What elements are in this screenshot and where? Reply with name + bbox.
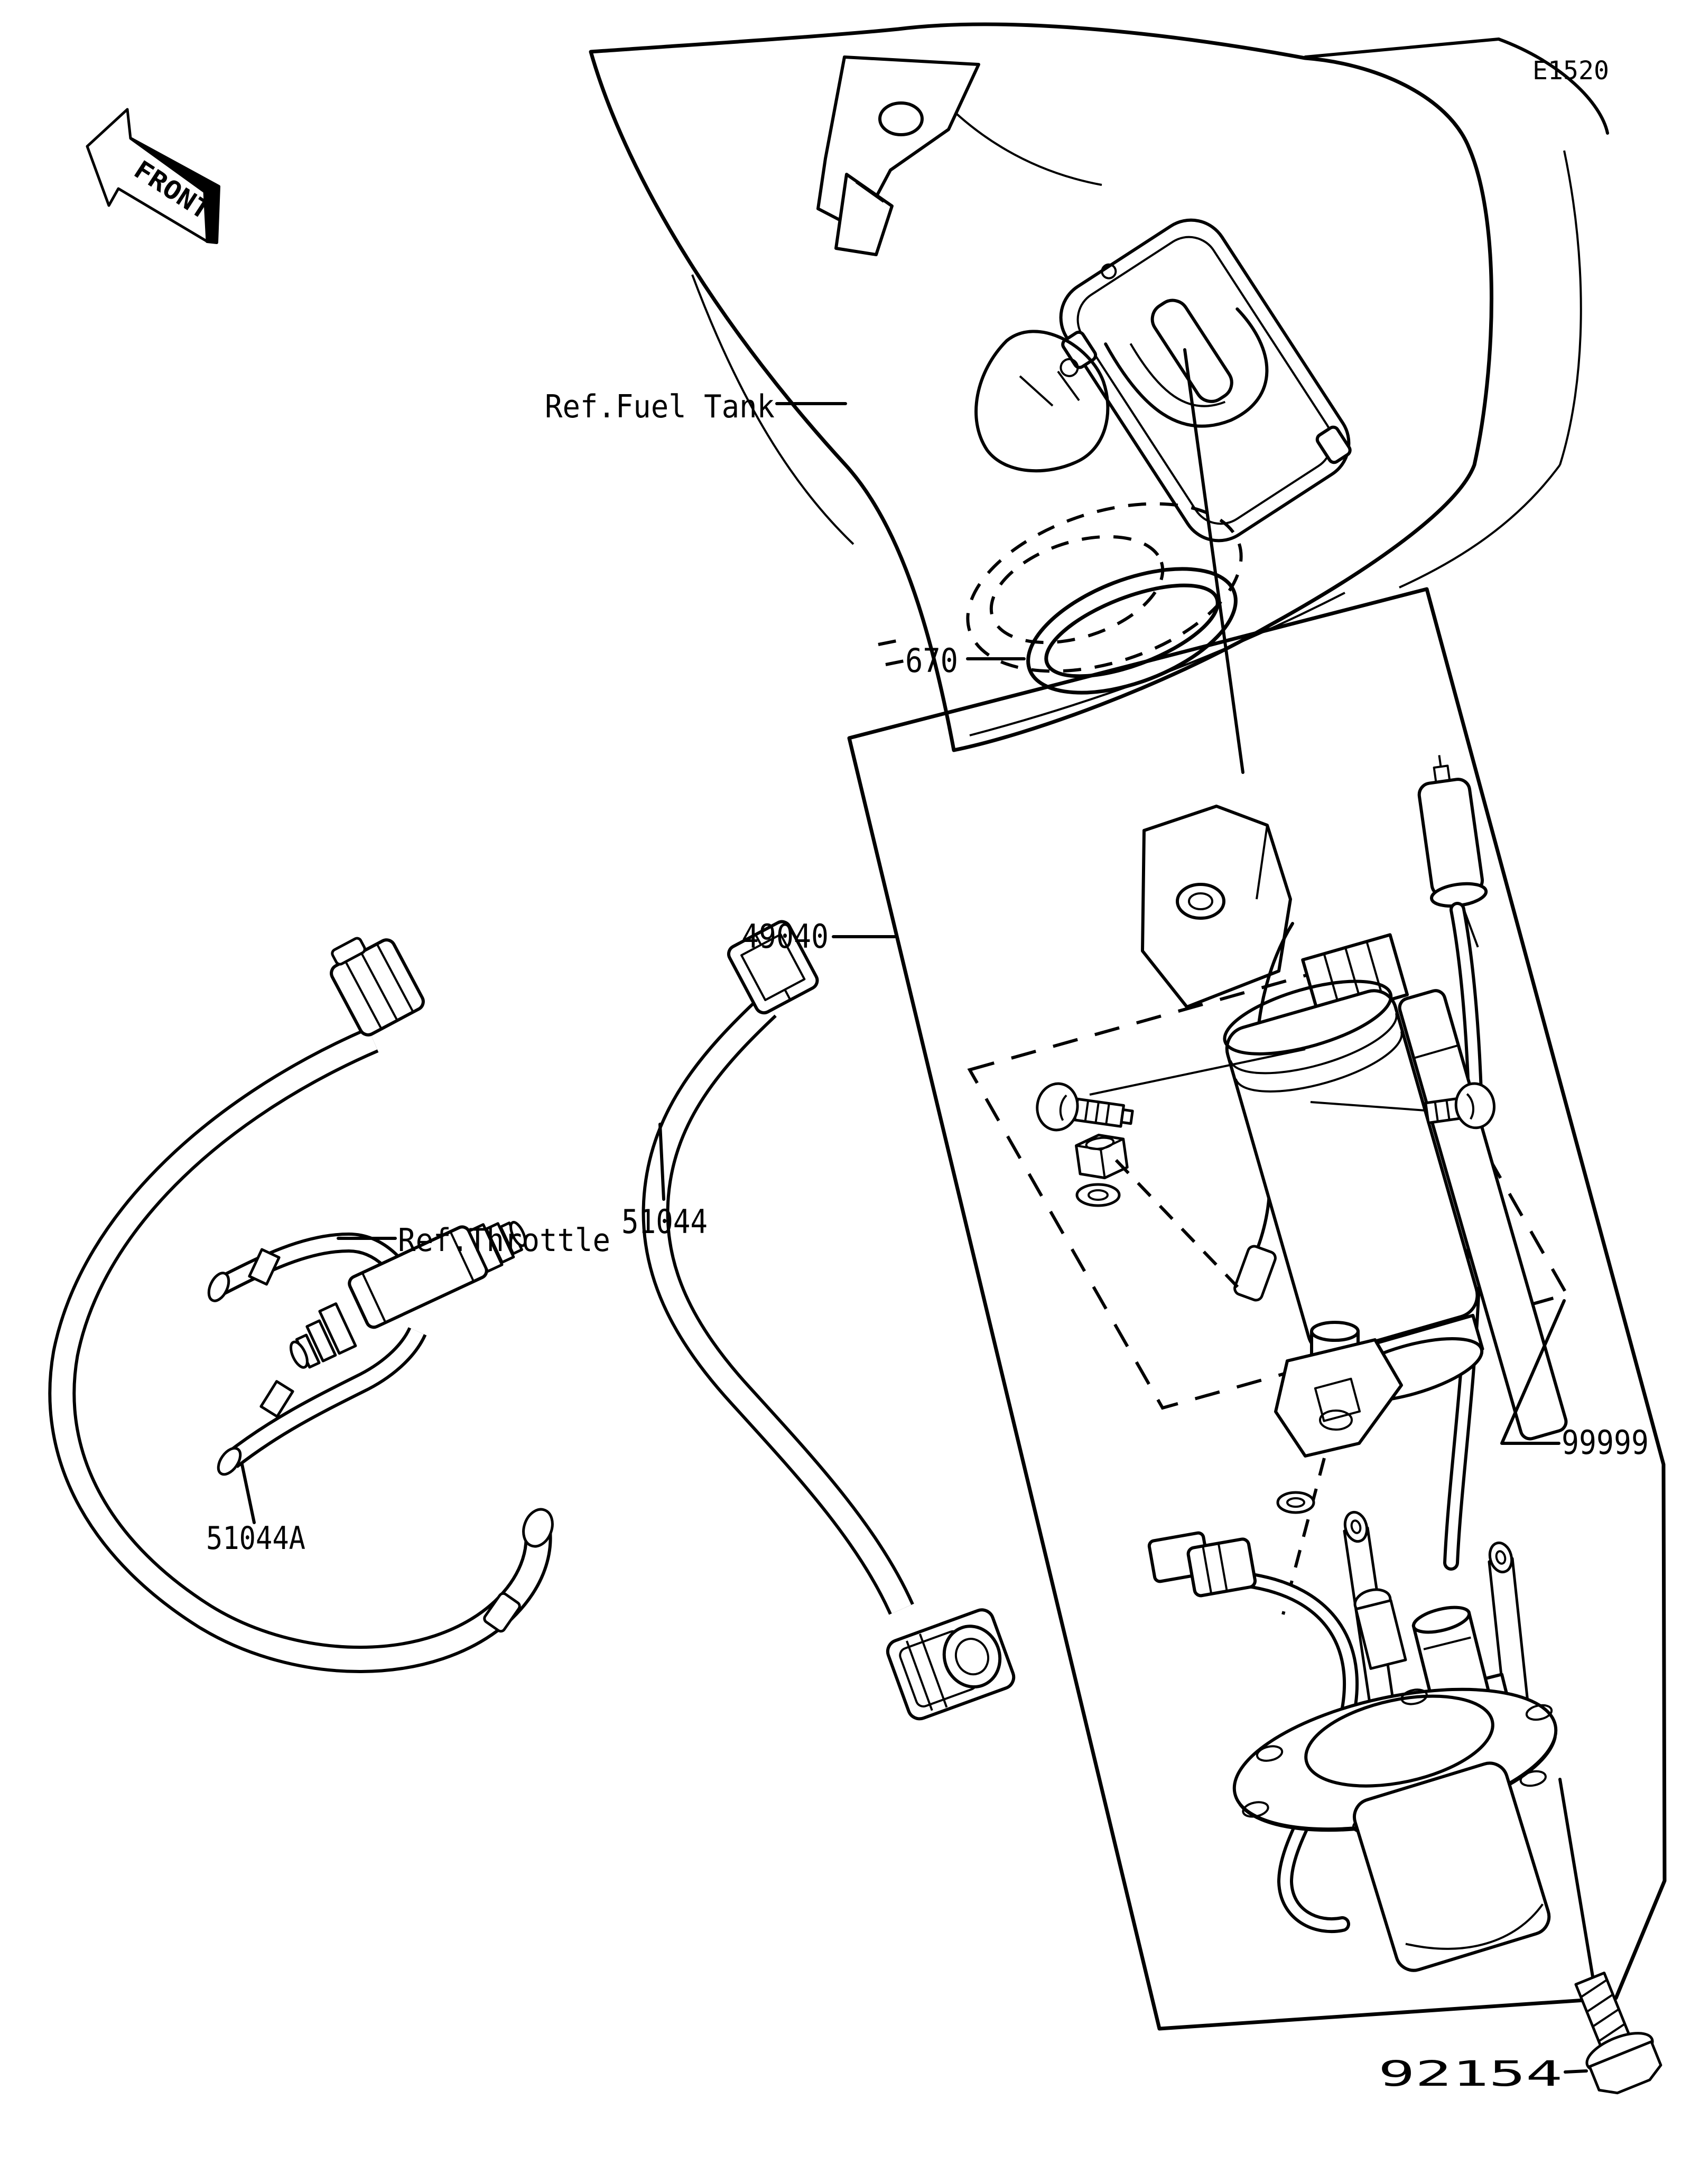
diagram-code-label: E1520 (1532, 56, 1609, 86)
leader-51044a (242, 1464, 254, 1523)
hex-nut (1075, 1132, 1129, 1181)
screw-left (1034, 1081, 1135, 1140)
part-label-51044[interactable]: 51044 (621, 1202, 708, 1241)
fastener-axis-dashed (1116, 1160, 1238, 1287)
tank-bracket (818, 57, 979, 255)
ref-throttle-label: Ref.Throttle (398, 1222, 610, 1259)
part-label-99999[interactable]: 99999 (1562, 1423, 1649, 1462)
pump-cover-housing (1026, 204, 1363, 567)
part-label-49040[interactable]: 49040 (741, 917, 829, 956)
hose-51044 (656, 919, 1017, 1722)
quick-connector-top-left (321, 924, 426, 1038)
front-arrow: FRONT (87, 109, 219, 242)
bolt-92154 (1558, 1966, 1666, 2099)
part-label-670[interactable]: 670 (905, 641, 958, 680)
part-label-92154[interactable]: 92154 (1378, 2054, 1563, 2094)
fuel-pump-unit (1142, 751, 1606, 2059)
part-label-51044a[interactable]: 51044A (206, 1520, 305, 1557)
exploded-parts-diagram: FRONT E1520 (0, 0, 1691, 2184)
parts-diagram-page: FRONT E1520 (0, 0, 1691, 2184)
quick-connector-51044-bottom (885, 1607, 1017, 1722)
ref-fuel-tank-label: Ref.Fuel Tank (545, 388, 775, 425)
leader-92154 (1565, 2071, 1586, 2072)
harness-connector (1148, 1525, 1256, 1603)
flat-washer (1077, 1184, 1119, 1206)
hose-51044a (62, 924, 557, 1659)
